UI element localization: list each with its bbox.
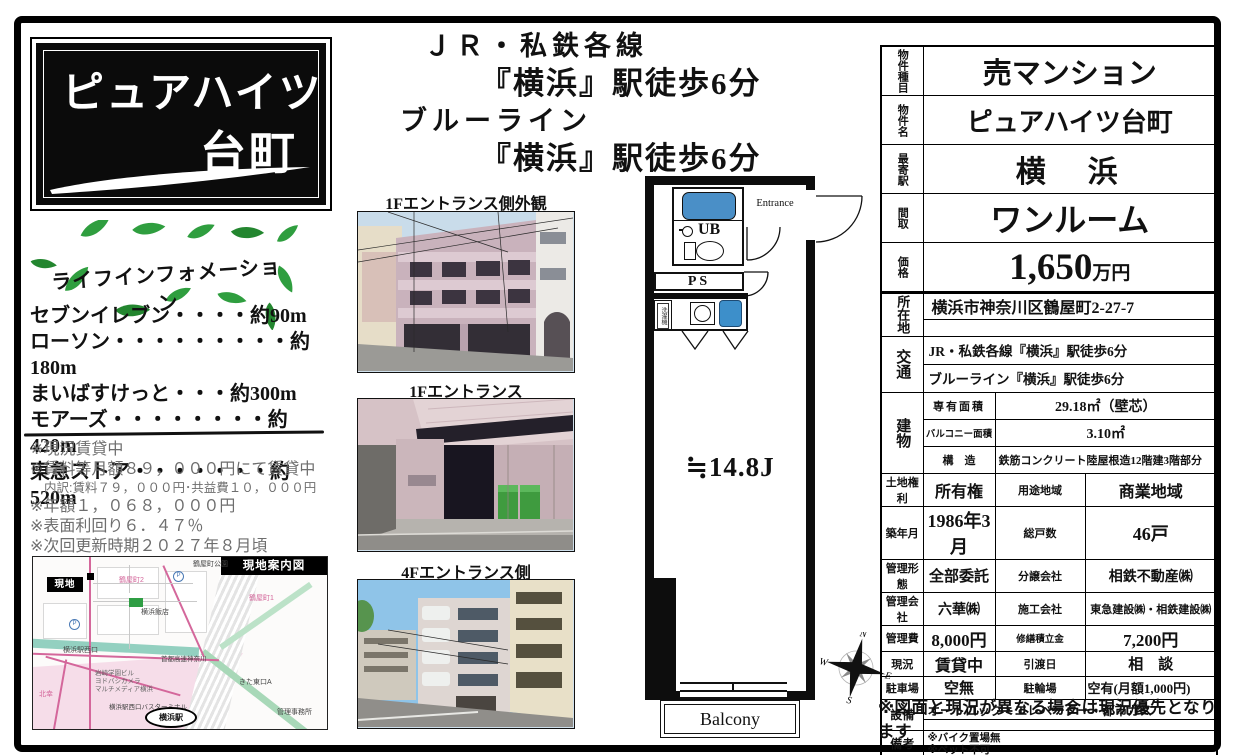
grid-label: 管理会社 bbox=[881, 592, 923, 625]
land-rights: 所有権 bbox=[923, 473, 995, 506]
kitchen-counter-edge bbox=[746, 299, 748, 331]
table-row: ブルーライン『横浜』駅徒歩6分 bbox=[881, 364, 1217, 392]
price-value: 1,650 bbox=[1009, 247, 1092, 288]
map-label-highway: 首都高速神奈川 bbox=[161, 653, 207, 663]
table-row: 最寄駅 横 浜 bbox=[881, 145, 1217, 194]
handover-date: 相 談 bbox=[1085, 651, 1217, 676]
zoning: 商業地域 bbox=[1085, 473, 1217, 506]
sink-icon bbox=[682, 226, 693, 237]
table-row: 物件種目 売マンション bbox=[881, 46, 1217, 96]
row-label: 交通 bbox=[881, 336, 923, 392]
row-label: 建物 bbox=[881, 392, 923, 473]
address-line2 bbox=[923, 319, 1217, 336]
note-line: ※現況賃貸中 bbox=[30, 440, 345, 460]
photo-entrance bbox=[357, 398, 575, 552]
access-line-2: 『横浜』駅徒歩6分 bbox=[400, 65, 870, 103]
unit-bath-mid: UB bbox=[674, 220, 742, 241]
balcony: Balcony bbox=[660, 700, 800, 738]
svg-text:S: S bbox=[845, 695, 852, 704]
structure: 鉄筋コンクリート陸屋根造12階建3階部分 bbox=[995, 446, 1217, 473]
map-site-building bbox=[87, 573, 94, 580]
table-row: 物件名 ピュアハイツ台町 bbox=[881, 96, 1217, 145]
table-row: 間取 ワンルーム bbox=[881, 194, 1217, 243]
row-label: 所在地 bbox=[881, 293, 923, 336]
life-info-item: まいばすけっと・・・約300m bbox=[30, 381, 330, 407]
table-row: 土地権利 所有権 用途地域 商業地域 bbox=[881, 473, 1217, 506]
grid-label: 管理費 bbox=[881, 625, 923, 651]
title-box: ピュアハイツ 台町 bbox=[30, 37, 332, 211]
grid-label: 修繕積立金 bbox=[995, 625, 1085, 651]
svg-text:N: N bbox=[858, 632, 869, 641]
parking-icon: P bbox=[173, 571, 184, 582]
flyer-page: ピュアハイツ 台町 ＪＲ・私鉄各線 『横浜』駅徒歩6分 ブルーライン 『横浜』駅… bbox=[0, 0, 1235, 755]
grid-label: 管理形態 bbox=[881, 559, 923, 592]
table-row bbox=[881, 319, 1217, 336]
entrance-label: Entrance bbox=[744, 198, 806, 209]
detail-table: 所在地 横浜市神奈川区鶴屋町2-27-7 交通 JR・私鉄各線『横浜』駅徒歩6分… bbox=[880, 292, 1218, 755]
grid-label: 築年月 bbox=[881, 506, 923, 559]
management-company: 六華㈱ bbox=[923, 592, 995, 625]
building-name-line1: ピュアハイツ bbox=[62, 59, 323, 120]
map-label-kita-east: きた東口A bbox=[239, 677, 272, 687]
table-row: 交通 JR・私鉄各線『横浜』駅徒歩6分 bbox=[881, 336, 1217, 364]
map-label-office: 管理事務所 bbox=[277, 707, 312, 717]
note-line: ※賃料等月額８９，０００円にて賃貸中 bbox=[30, 460, 345, 480]
row-label: 最寄駅 bbox=[881, 145, 923, 194]
bathtub bbox=[682, 192, 736, 220]
remarks-line2: ※ペット不可 bbox=[928, 744, 1214, 755]
pipe-space: PS bbox=[654, 272, 744, 291]
map-title: 現地案内図 bbox=[221, 557, 327, 575]
structure-label: 構 造 bbox=[923, 446, 995, 473]
management-fee: 8,000円 bbox=[923, 625, 995, 651]
balcony-window bbox=[680, 682, 787, 699]
table-row: 現況 賃貸中 引渡日 相 談 bbox=[881, 651, 1217, 676]
unit-bath-label: UB bbox=[698, 221, 720, 239]
kitchen-counter-line bbox=[654, 329, 748, 331]
table-row: 価格 1,650万円 bbox=[881, 243, 1217, 293]
balcony-area-label: バルコニー面積 bbox=[923, 419, 995, 446]
note-line: ※表面利回り６．４７％ bbox=[30, 517, 345, 537]
parking-icon: P bbox=[69, 619, 80, 630]
note-line: ※次回更新時期２０２７年８月頃 bbox=[30, 537, 345, 557]
room-size-label: ≒14.8J bbox=[655, 452, 805, 483]
current-status: 賃貸中 bbox=[923, 651, 995, 676]
photo-exterior bbox=[357, 211, 575, 373]
footer-note: ※図面と現況が異なる場合は現況優先となります bbox=[878, 694, 1223, 742]
property-name: ピュアハイツ台町 bbox=[923, 96, 1217, 145]
map-station-oval: 横浜駅 bbox=[145, 707, 197, 728]
builder: 東急建設㈱・相鉄建設㈱ bbox=[1085, 592, 1217, 625]
entrance-door-gap bbox=[806, 190, 815, 240]
washer-label: 洗濯機 bbox=[657, 303, 669, 329]
row-label: 物件種目 bbox=[881, 46, 923, 96]
management-type: 全部委託 bbox=[923, 559, 995, 592]
unit-bath-room: UB bbox=[672, 187, 744, 266]
stove-icon bbox=[690, 302, 715, 325]
grid-label: 引渡日 bbox=[995, 651, 1085, 676]
toilet-icon bbox=[696, 241, 724, 261]
grid-label: 土地権利 bbox=[881, 473, 923, 506]
table-row: 所在地 横浜市神奈川区鶴屋町2-27-7 bbox=[881, 293, 1217, 319]
area-label: 専有面積 bbox=[923, 392, 995, 419]
summary-table: 物件種目 売マンション 物件名 ピュアハイツ台町 最寄駅 横 浜 間取 ワンルー… bbox=[880, 45, 1218, 293]
photo-exterior-image bbox=[358, 212, 573, 371]
map-label-multimedia: マルチメディア横浜 bbox=[95, 683, 153, 693]
note-line: ※年額１，０６８，０００円 bbox=[30, 497, 345, 517]
access-route-1: JR・私鉄各線『横浜』駅徒歩6分 bbox=[923, 336, 1217, 364]
map-street bbox=[93, 601, 197, 602]
table-row: 構 造 鉄筋コンクリート陸屋根造12階建3階部分 bbox=[881, 446, 1217, 473]
built-date: 1986年3月 bbox=[923, 506, 995, 559]
property-type: 売マンション bbox=[923, 46, 1217, 96]
photo-entrance-image bbox=[358, 399, 573, 550]
grid-label: 施工会社 bbox=[995, 592, 1085, 625]
row-label: 価格 bbox=[881, 243, 923, 293]
grid-label: 分譲会社 bbox=[995, 559, 1085, 592]
access-line-3: ブルーライン bbox=[400, 103, 870, 140]
layout-type: ワンルーム bbox=[923, 194, 1217, 243]
kitchen-wall bbox=[654, 293, 748, 299]
photo-upper-view-image bbox=[358, 580, 573, 727]
map-site-label: 現地 bbox=[47, 577, 83, 592]
note-line-breakdown: 内訳:賃料７９，０００円･共益費１０，０００円 bbox=[30, 480, 345, 497]
map-label-west-exit: 横浜駅西口 bbox=[63, 645, 98, 655]
balcony-area: 3.10㎡ bbox=[995, 419, 1217, 446]
photo-upper-view bbox=[357, 579, 575, 729]
grid-label: 現況 bbox=[881, 651, 923, 676]
exclusive-area: 29.18㎡（壁芯） bbox=[995, 392, 1217, 419]
map-label-park: 鶴屋町公園 bbox=[193, 559, 228, 569]
price-unit: 万円 bbox=[1092, 263, 1130, 284]
address: 横浜市神奈川区鶴屋町2-27-7 bbox=[923, 293, 1217, 319]
table-row: 築年月 1986年3月 総戸数 46戸 bbox=[881, 506, 1217, 559]
nearest-station: 横 浜 bbox=[923, 145, 1217, 194]
title-box-inner: ピュアハイツ 台町 bbox=[36, 43, 326, 205]
access-line-4: 『横浜』駅徒歩6分 bbox=[400, 140, 870, 178]
access-route-2: ブルーライン『横浜』駅徒歩6分 bbox=[923, 364, 1217, 392]
map-label-town2: 鶴屋町2 bbox=[119, 575, 144, 585]
map-block bbox=[43, 603, 87, 639]
location-map: P P 現地 現地案内図 鶴屋町公園 鶴屋町2 鶴屋町1 横浜飯店 横浜駅西口 … bbox=[32, 556, 328, 730]
access-line-1: ＪＲ・私鉄各線 bbox=[400, 28, 870, 65]
repair-fund: 7,200円 bbox=[1085, 625, 1217, 651]
table-row: 管理費 8,000円 修繕積立金 7,200円 bbox=[881, 625, 1217, 651]
map-label-kitasai: 北幸 bbox=[39, 689, 53, 699]
table-row: バルコニー面積 3.10㎡ bbox=[881, 419, 1217, 446]
map-label-town1: 鶴屋町1 bbox=[249, 593, 274, 603]
row-label: 物件名 bbox=[881, 96, 923, 145]
wall-pillar bbox=[645, 578, 676, 700]
kitchen-sink bbox=[719, 300, 742, 327]
row-label: 間取 bbox=[881, 194, 923, 243]
washer-space: 洗濯機 bbox=[654, 300, 672, 330]
brush-stroke bbox=[44, 157, 322, 199]
price-cell: 1,650万円 bbox=[923, 243, 1217, 293]
svg-text:W: W bbox=[820, 656, 830, 669]
rental-notes: ※現況賃貸中 ※賃料等月額８９，０００円にて賃貸中 内訳:賃料７９，０００円･共… bbox=[30, 440, 345, 557]
developer: 相鉄不動産㈱ bbox=[1085, 559, 1217, 592]
map-green-building bbox=[129, 593, 143, 607]
map-label-restaurant: 横浜飯店 bbox=[141, 607, 169, 617]
table-row: 管理会社 六華㈱ 施工会社 東急建設㈱・相鉄建設㈱ bbox=[881, 592, 1217, 625]
life-info-item: セブンイレブン・・・・約90m bbox=[30, 303, 330, 329]
total-units: 46戸 bbox=[1085, 506, 1217, 559]
grid-label: 用途地域 bbox=[995, 473, 1085, 506]
toilet-tank-icon bbox=[684, 242, 696, 260]
access-headline: ＪＲ・私鉄各線 『横浜』駅徒歩6分 ブルーライン 『横浜』駅徒歩6分 bbox=[400, 28, 870, 178]
life-info-item: ローソン・・・・・・・・・約180m bbox=[30, 329, 330, 381]
grid-label: 総戸数 bbox=[995, 506, 1085, 559]
table-row: 建物 専有面積 29.18㎡（壁芯） bbox=[881, 392, 1217, 419]
table-row: 管理形態 全部委託 分譲会社 相鉄不動産㈱ bbox=[881, 559, 1217, 592]
map-road bbox=[89, 557, 91, 730]
